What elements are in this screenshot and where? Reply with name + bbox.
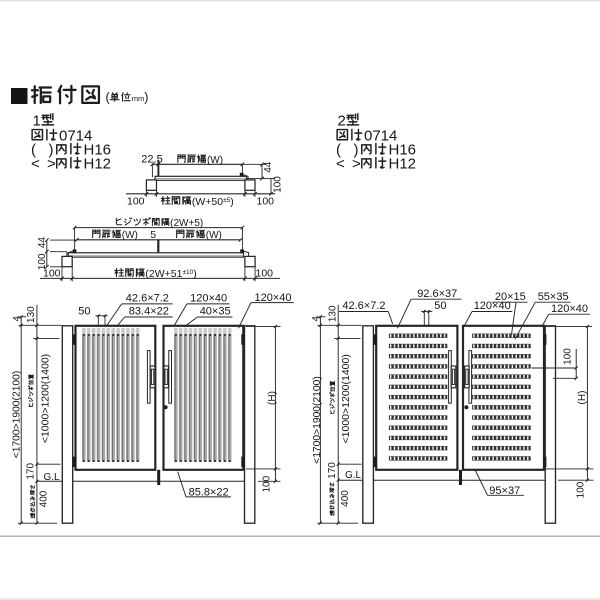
- svg-text:170: 170: [26, 463, 37, 480]
- svg-text:(W+50: (W+50: [192, 196, 223, 208]
- svg-text:<: <: [31, 156, 40, 173]
- svg-text:>: >: [352, 156, 361, 173]
- svg-text:G.L: G.L: [345, 470, 362, 481]
- svg-text:22.5: 22.5: [141, 153, 162, 165]
- svg-text:40×35: 40×35: [200, 306, 231, 318]
- svg-text:120×40: 120×40: [255, 292, 292, 304]
- svg-text:100: 100: [256, 267, 274, 279]
- svg-text:<1700>1900(2100): <1700>1900(2100): [312, 376, 323, 464]
- svg-text:<: <: [336, 156, 345, 173]
- svg-text:100: 100: [562, 348, 573, 365]
- svg-text:(H): (H): [577, 391, 588, 405]
- svg-text:2: 2: [338, 113, 346, 130]
- svg-text:H12: H12: [389, 156, 417, 173]
- svg-text:42.6×7.2: 42.6×7.2: [126, 293, 169, 305]
- svg-text:100: 100: [273, 176, 284, 193]
- svg-text:>: >: [47, 156, 56, 173]
- svg-text:): ): [193, 268, 197, 280]
- svg-text:4: 4: [311, 316, 322, 321]
- svg-text:(W): (W): [207, 155, 223, 166]
- svg-text:130: 130: [327, 305, 338, 322]
- svg-text:5: 5: [150, 229, 156, 241]
- svg-text:(H): (H): [267, 391, 278, 405]
- svg-text:1: 1: [33, 113, 41, 130]
- svg-text:<1000>1200(1400): <1000>1200(1400): [340, 354, 352, 443]
- svg-text:130: 130: [26, 306, 37, 323]
- svg-text:4: 4: [11, 316, 22, 321]
- svg-text:55×35: 55×35: [538, 291, 569, 303]
- svg-text:100: 100: [127, 195, 145, 207]
- svg-text:100: 100: [257, 195, 275, 207]
- svg-text:<1000>1200(1400): <1000>1200(1400): [39, 354, 51, 443]
- svg-text:100: 100: [261, 475, 272, 492]
- svg-text:50: 50: [78, 306, 90, 318]
- svg-text:120×40: 120×40: [551, 303, 588, 315]
- svg-text:20×15: 20×15: [495, 291, 526, 303]
- svg-text:170: 170: [327, 462, 338, 479]
- svg-text:): ): [230, 196, 234, 208]
- svg-text:±10: ±10: [182, 269, 193, 276]
- svg-text:120×40: 120×40: [190, 293, 227, 305]
- svg-text:H12: H12: [84, 156, 112, 173]
- svg-text:50: 50: [434, 300, 446, 312]
- svg-text:92.6×37: 92.6×37: [417, 288, 457, 300]
- svg-text:400: 400: [39, 490, 50, 507]
- svg-text:): ): [144, 91, 148, 105]
- svg-text:44: 44: [37, 237, 48, 249]
- svg-text:100: 100: [575, 481, 586, 498]
- svg-text:100: 100: [43, 267, 61, 279]
- svg-text:44: 44: [263, 161, 274, 173]
- svg-text:83.4×22: 83.4×22: [129, 306, 169, 318]
- svg-text:(2W+51: (2W+51: [145, 268, 182, 280]
- svg-text:<1700>1900(2100): <1700>1900(2100): [11, 371, 22, 459]
- svg-text:42.6×7.2: 42.6×7.2: [342, 300, 385, 312]
- svg-text:mm: mm: [132, 94, 145, 103]
- svg-text:400: 400: [340, 490, 351, 507]
